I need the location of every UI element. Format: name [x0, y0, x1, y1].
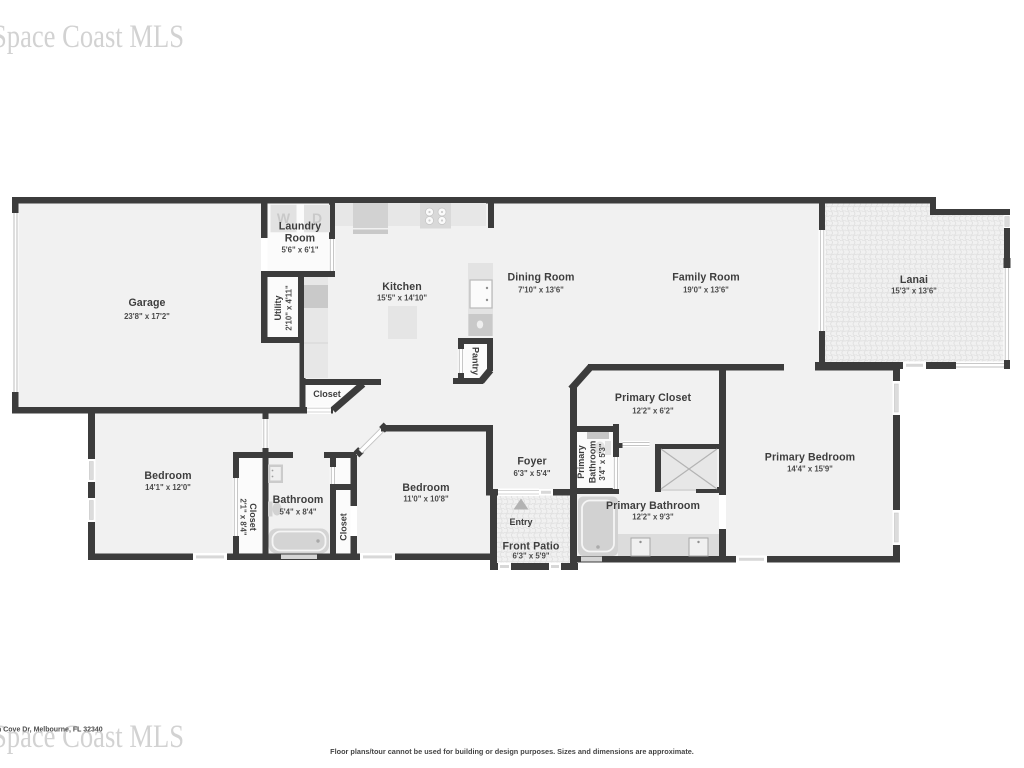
svg-text:Bathroom: Bathroom	[273, 494, 324, 506]
svg-text:Closet: Closet	[248, 503, 258, 531]
svg-text:Lanai: Lanai	[900, 274, 928, 286]
svg-text:14'1" x 12'0": 14'1" x 12'0"	[145, 483, 191, 492]
svg-text:2'1" x 8'4": 2'1" x 8'4"	[239, 498, 248, 535]
svg-text:7'10" x 13'6": 7'10" x 13'6"	[518, 286, 564, 295]
svg-text:Primary Closet: Primary Closet	[615, 392, 692, 404]
svg-text:Floor plans/tour cannot be use: Floor plans/tour cannot be used for buil…	[330, 747, 694, 756]
svg-text:Dining Room: Dining Room	[507, 272, 574, 284]
svg-text:Entry: Entry	[509, 517, 532, 527]
svg-text:6'3" x 5'9": 6'3" x 5'9"	[512, 552, 549, 561]
svg-text:n Cove Dr, Melbourne, FL 32340: n Cove Dr, Melbourne, FL 32340	[0, 727, 103, 734]
svg-text:Family Room: Family Room	[672, 272, 740, 284]
svg-text:5'6" x 6'1": 5'6" x 6'1"	[281, 246, 318, 255]
svg-text:15'5" x 14'10": 15'5" x 14'10"	[377, 294, 427, 303]
svg-text:19'0" x 13'6": 19'0" x 13'6"	[683, 286, 729, 295]
svg-text:Foyer: Foyer	[517, 456, 546, 468]
svg-text:Space Coast MLS: Space Coast MLS	[0, 19, 184, 55]
svg-text:Laundry: Laundry	[279, 221, 322, 233]
svg-text:Room: Room	[285, 233, 315, 245]
svg-text:Garage: Garage	[128, 297, 165, 309]
svg-text:Pantry: Pantry	[471, 347, 481, 375]
svg-text:23'8" x 17'2": 23'8" x 17'2"	[124, 312, 170, 321]
svg-text:Utility: Utility	[273, 295, 283, 320]
svg-text:6'3" x 5'4": 6'3" x 5'4"	[513, 469, 550, 478]
svg-text:3'4" x 5'3": 3'4" x 5'3"	[598, 443, 607, 480]
svg-text:5'4" x 8'4": 5'4" x 8'4"	[279, 508, 316, 517]
svg-text:Closet: Closet	[339, 513, 349, 541]
svg-text:11'0" x 10'8": 11'0" x 10'8"	[403, 495, 449, 504]
svg-text:Primary Bathroom: Primary Bathroom	[606, 500, 700, 512]
svg-text:Bedroom: Bedroom	[402, 482, 449, 494]
svg-text:12'2" x 9'3": 12'2" x 9'3"	[632, 513, 674, 522]
svg-text:Bedroom: Bedroom	[144, 470, 191, 482]
svg-text:Closet: Closet	[313, 389, 341, 399]
svg-text:Bathroom: Bathroom	[588, 441, 598, 484]
svg-text:2'10" x 4'11": 2'10" x 4'11"	[285, 285, 294, 331]
svg-text:Space Coast MLS: Space Coast MLS	[0, 719, 184, 755]
svg-text:14'4" x 15'9": 14'4" x 15'9"	[787, 465, 833, 474]
svg-text:Primary Bedroom: Primary Bedroom	[765, 452, 855, 464]
svg-text:15'3" x 13'6": 15'3" x 13'6"	[891, 287, 937, 296]
svg-text:Primary: Primary	[576, 445, 586, 479]
svg-text:Kitchen: Kitchen	[382, 281, 422, 293]
svg-text:12'2" x 6'2": 12'2" x 6'2"	[632, 407, 674, 416]
